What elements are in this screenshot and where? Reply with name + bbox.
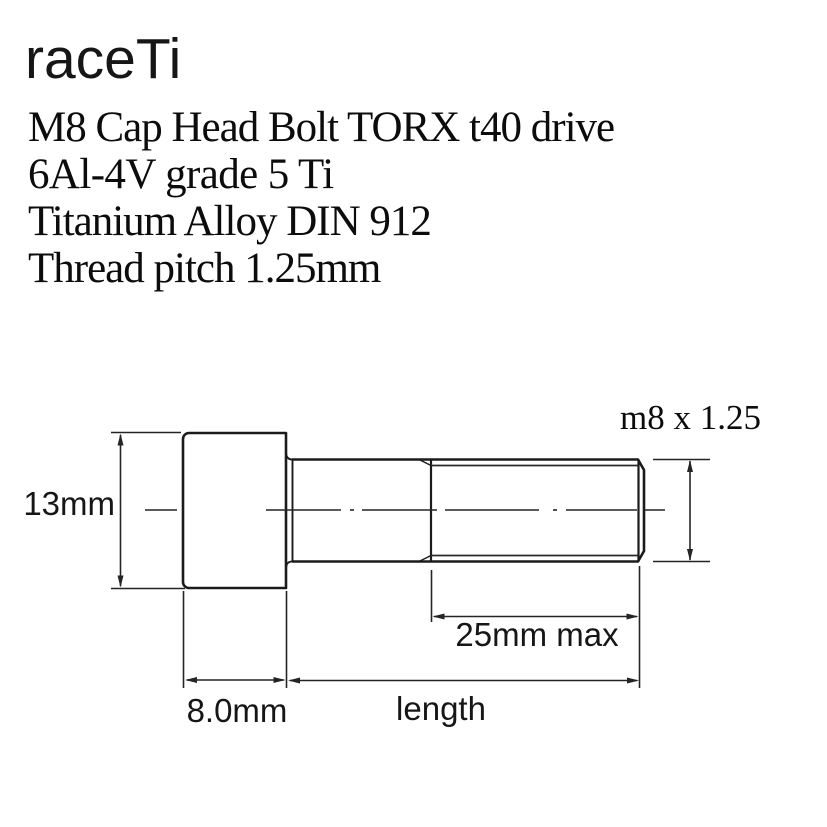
- svg-text:Titanium Alloy DIN 912: Titanium Alloy DIN 912: [28, 198, 431, 245]
- svg-text:6Al-4V grade 5 Ti: 6Al-4V grade 5 Ti: [28, 151, 334, 198]
- svg-text:m8 x 1.25: m8 x 1.25: [620, 398, 761, 437]
- svg-text:length: length: [396, 690, 486, 727]
- svg-text:raceTi: raceTi: [25, 27, 181, 91]
- svg-text:13mm: 13mm: [23, 485, 115, 522]
- svg-text:8.0mm: 8.0mm: [187, 692, 288, 729]
- svg-text:Thread pitch 1.25mm: Thread pitch 1.25mm: [28, 245, 381, 292]
- svg-text:25mm max: 25mm max: [455, 616, 619, 653]
- svg-text:M8 Cap Head Bolt TORX t40 driv: M8 Cap Head Bolt TORX t40 drive: [28, 104, 614, 151]
